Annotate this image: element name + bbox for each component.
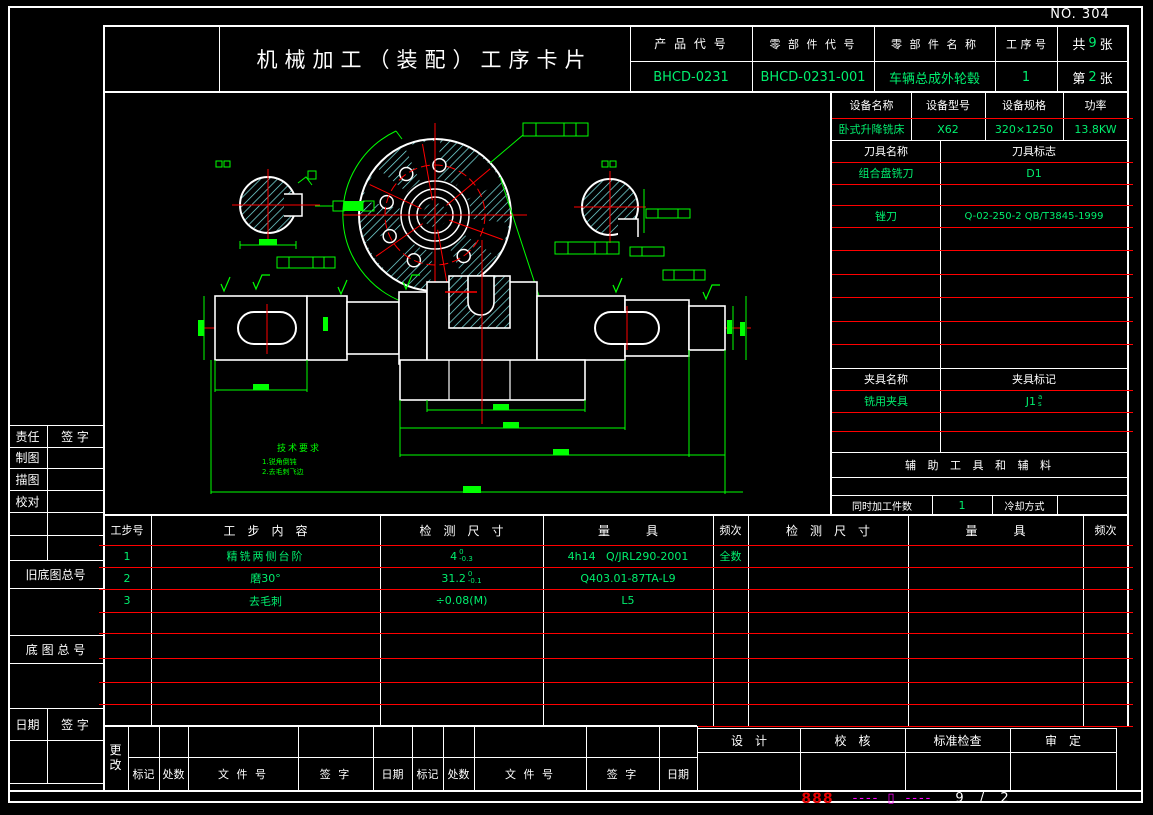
mark-label: 标记 <box>128 757 159 790</box>
part-name-value: 车辆总成外轮毂 <box>874 62 995 92</box>
line <box>832 184 1133 185</box>
line <box>8 535 103 536</box>
col-check-dim: 检 测 尺 寸 <box>380 515 543 545</box>
line <box>832 477 1128 478</box>
signature-label: 签 字 <box>47 425 103 447</box>
equipment-spec-value: 320×1250 <box>985 118 1063 140</box>
footer-dash-right: ---- <box>898 791 940 806</box>
dim-value: 4 <box>450 550 457 563</box>
total-suffix: 张 <box>1100 34 1113 53</box>
total-pages: 共9张 <box>1057 25 1128 62</box>
line <box>8 663 103 664</box>
line <box>99 633 1133 634</box>
sign-label-2: 签 字 <box>586 757 659 790</box>
fixture-mark-sub: s <box>1038 401 1042 409</box>
tech-note-2: 2.去毛刺飞边 <box>262 467 304 477</box>
line <box>99 612 1133 613</box>
line <box>99 682 1133 683</box>
tech-note-1: 1.锐角倒钝 <box>262 457 297 467</box>
tool-row2-mark: Q-02-250-2 QB/T3845-1999 <box>940 205 1128 227</box>
col-gauge: 量 具 <box>543 515 713 545</box>
card-title: 机械加工（装配）工序卡片 <box>219 25 630 92</box>
line <box>748 515 749 726</box>
trace-label: 描图 <box>8 468 47 490</box>
frequency: 全数 <box>713 545 748 567</box>
section-view-left <box>216 161 320 249</box>
change-label: 更 改 <box>103 726 128 790</box>
cooling-method-value <box>1057 495 1128 515</box>
line <box>8 512 103 513</box>
tool-row2-name: 锉刀 <box>832 205 940 227</box>
col-frequency: 频次 <box>713 515 748 545</box>
count-label-2: 处数 <box>443 757 474 790</box>
gauge: 4h14 Q/JRL290-2001 <box>543 545 713 567</box>
cooling-method-label: 冷却方式 <box>992 495 1057 515</box>
footer-code: 888 <box>795 791 840 806</box>
sheet-number: 第2张 <box>1057 62 1128 92</box>
proofread-label: 校对 <box>8 490 47 512</box>
process-no-value: 1 <box>995 62 1057 92</box>
line <box>832 297 1133 298</box>
line <box>832 321 1133 322</box>
total-prefix: 共 <box>1072 34 1085 53</box>
change-label-bottom: 改 <box>109 758 121 773</box>
product-code-label: 产 品 代 号 <box>630 25 752 62</box>
sheet-suffix: 张 <box>1100 68 1113 87</box>
line <box>8 740 103 741</box>
col-step-content: 工 步 内 容 <box>151 515 380 545</box>
fixture-mark-text: J1 <box>1026 395 1036 408</box>
dim-sub: -0.1 <box>468 578 482 586</box>
old-base-drawing-no-label: 旧底图总号 <box>8 560 103 588</box>
draft-label: 制图 <box>8 447 47 468</box>
fixture-name-value: 铣用夹具 <box>832 390 940 412</box>
check-label: 校 核 <box>800 728 905 752</box>
col-gauge-2: 量 具 <box>908 515 1083 545</box>
mark-label-2: 标记 <box>412 757 443 790</box>
engineering-drawing <box>103 92 831 515</box>
line <box>8 783 103 784</box>
gauge: L5 <box>543 589 713 612</box>
shaft-view <box>198 240 751 494</box>
part-code-label: 零 部 件 代 号 <box>752 25 874 62</box>
line <box>8 588 103 589</box>
line <box>832 431 1133 432</box>
design-label: 设 计 <box>698 728 800 752</box>
base-drawing-no-label: 底 图 总 号 <box>8 635 103 663</box>
product-code-value: BHCD-0231 <box>630 62 752 92</box>
step-content: 精铣两侧台阶 <box>151 545 380 567</box>
equipment-power-value: 13.8KW <box>1063 118 1128 140</box>
step-content: 去毛刺 <box>151 589 380 612</box>
date-label-rev: 日期 <box>373 757 412 790</box>
line <box>832 412 1133 413</box>
line <box>832 344 1133 345</box>
check-dim: 4 0-0.3 <box>380 545 543 567</box>
line <box>103 25 105 790</box>
part-name-label: 零 部 件 名 称 <box>874 25 995 62</box>
step-no: 1 <box>103 545 151 567</box>
responsibility-label: 责任 <box>8 425 47 447</box>
equipment-model-value: X62 <box>911 118 985 140</box>
tech-requirements-title: 技术要求 <box>277 441 321 454</box>
dim-value: 31.2 <box>441 572 466 585</box>
col-frequency-2: 频次 <box>1083 515 1128 545</box>
line <box>99 658 1133 659</box>
date-label-rev-2: 日期 <box>659 757 697 790</box>
line <box>1116 728 1117 790</box>
sheet-no-value: 2 <box>1088 70 1096 85</box>
part-code-value: BHCD-0231-001 <box>752 62 874 92</box>
equipment-spec-label: 设备规格 <box>985 92 1063 118</box>
sign-label: 签 字 <box>298 757 373 790</box>
tool-row1-mark: D1 <box>940 162 1128 184</box>
dim-sub: -0.3 <box>459 556 473 564</box>
check-dim: ÷0.08(M) <box>380 589 543 612</box>
equipment-model-label: 设备型号 <box>911 92 985 118</box>
equipment-name-value: 卧式升降铣床 <box>832 118 911 140</box>
line <box>99 704 1133 705</box>
line <box>103 725 697 727</box>
step-no: 3 <box>103 589 151 612</box>
fixture-mark-label: 夹具标记 <box>940 368 1128 390</box>
simultaneous-count-value: 1 <box>932 495 992 515</box>
footer-dash-left: ---- <box>845 791 887 806</box>
line <box>832 274 1133 275</box>
equipment-name-label: 设备名称 <box>832 92 911 118</box>
check-dim: 31.2 0-0.1 <box>380 567 543 589</box>
fixture-mark-value: J1 as <box>940 390 1128 412</box>
file-no-label: 文 件 号 <box>188 757 298 790</box>
line <box>1083 515 1084 726</box>
step-content: 磨30° <box>151 567 380 589</box>
process-card-sheet: NO. 304 <box>0 0 1153 815</box>
change-label-top: 更 <box>109 743 121 758</box>
count-label: 处数 <box>159 757 188 790</box>
process-no-label: 工 序 号 <box>995 25 1057 62</box>
footer-sheet-ratio: 9 / 2 <box>940 790 1030 806</box>
sheet-no-label: NO. 304 <box>1030 5 1130 23</box>
simultaneous-count-label: 同时加工件数 <box>832 495 932 515</box>
step-no: 2 <box>103 567 151 589</box>
gauge: Q403.01-87TA-L9 <box>543 567 713 589</box>
tool-mark-label: 刀具标志 <box>940 140 1128 162</box>
signature-label-2: 签 字 <box>47 708 103 740</box>
standard-check-label: 标准检查 <box>905 728 1010 752</box>
col-step-no: 工步号 <box>103 515 151 545</box>
col-check-dim-2: 检 测 尺 寸 <box>748 515 908 545</box>
audit-label: 审 定 <box>1010 728 1116 752</box>
total-pages-value: 9 <box>1088 36 1096 51</box>
tool-row1-name: 组合盘铣刀 <box>832 162 940 184</box>
date-label: 日期 <box>8 708 47 740</box>
line <box>832 250 1133 251</box>
aux-tools-header: 辅 助 工 具 和 辅 料 <box>832 452 1128 477</box>
line <box>832 227 1133 228</box>
sheet-prefix: 第 <box>1072 68 1085 87</box>
tool-name-label: 刀具名称 <box>832 140 940 162</box>
fixture-name-label: 夹具名称 <box>832 368 940 390</box>
line <box>697 726 1133 727</box>
line <box>698 752 1116 753</box>
file-no-label-2: 文 件 号 <box>474 757 586 790</box>
line <box>908 515 909 726</box>
equipment-power-label: 功率 <box>1063 92 1128 118</box>
